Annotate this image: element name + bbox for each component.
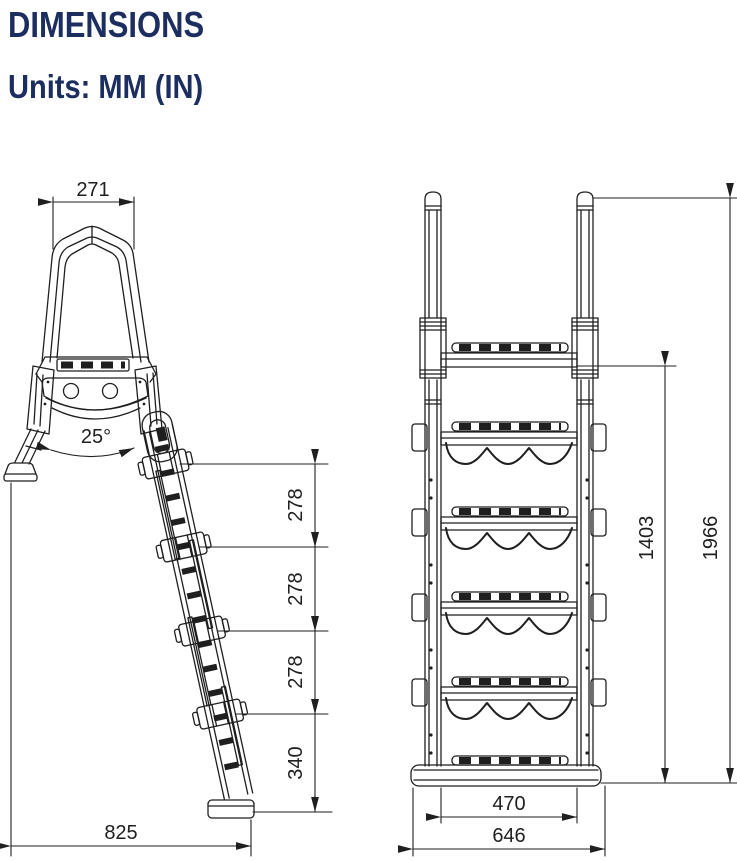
top-platform: [441, 343, 577, 367]
deck-body: [36, 357, 156, 419]
dim-segment-4-label: 340: [285, 746, 307, 779]
ladder-dimensions-drawing: 271 25° 278 278 278 340: [0, 0, 737, 862]
side-view-figure: 271 25° 278 278 278 340: [4, 179, 332, 856]
front-leg: [4, 429, 45, 481]
front-rail-left: [420, 192, 446, 766]
dim-angle-label: 25°: [81, 426, 111, 448]
dim-step-chain: 278 278 278 340: [180, 464, 332, 812]
dim-deck-height: 1403: [577, 366, 676, 783]
dim-total-height-label: 1966: [700, 516, 722, 561]
dim-leg-angle: 25°: [51, 426, 134, 457]
dim-base-width-label: 646: [492, 825, 525, 847]
handle-arch: [42, 226, 149, 362]
dim-footprint-label: 825: [104, 822, 137, 844]
incline-ladder: [128, 406, 264, 801]
incline-ladder-foot: [208, 800, 254, 818]
front-view-figure: 1966 1403 470 646: [411, 192, 737, 856]
dim-segment-3-label: 278: [285, 655, 307, 688]
dim-tread-width-label: 470: [492, 793, 525, 815]
dimensions-page: DIMENSIONS Units: MM (IN): [0, 0, 737, 862]
dim-segment-2-label: 278: [285, 572, 307, 605]
dim-deck-height-label: 1403: [636, 516, 658, 561]
dim-tread-width: 470: [441, 788, 577, 823]
front-rail-right: [572, 192, 598, 766]
base-plate: [411, 756, 601, 786]
dim-handle-width-label: 271: [76, 179, 109, 201]
dim-segment-1-label: 278: [285, 488, 307, 521]
